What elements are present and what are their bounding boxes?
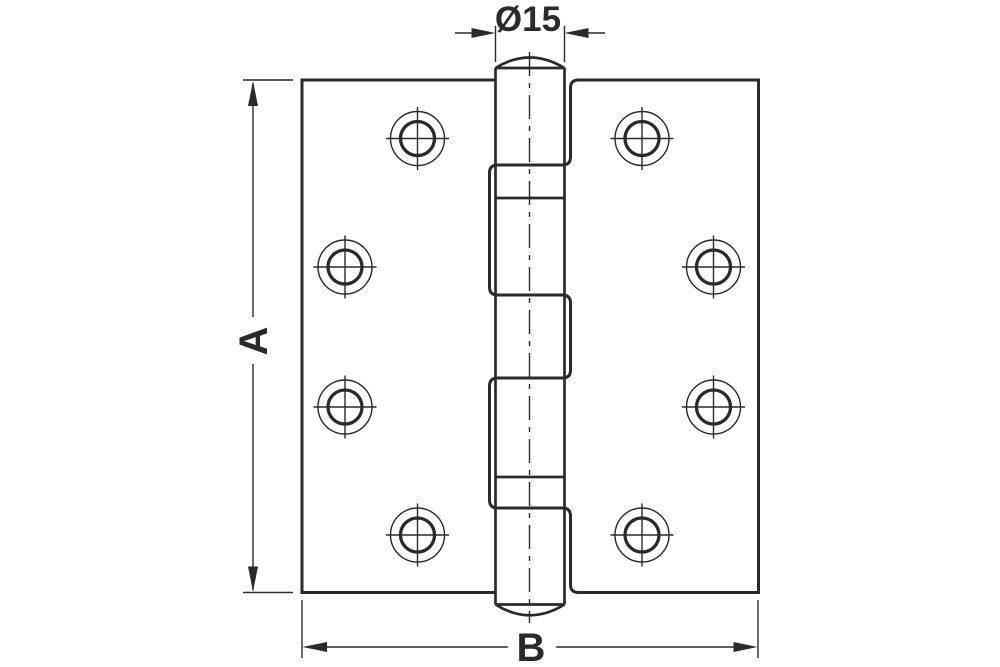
arrowhead-right bbox=[734, 642, 758, 652]
arrowhead-left bbox=[303, 642, 328, 652]
screw-hole bbox=[682, 236, 745, 299]
screw-hole bbox=[386, 504, 449, 567]
drawing-canvas: Ø15 A B bbox=[0, 0, 1000, 667]
hinge-barrel bbox=[496, 52, 565, 623]
width-dimension-label: B bbox=[517, 626, 546, 667]
screw-hole bbox=[314, 236, 377, 299]
height-dimension-label: A bbox=[232, 327, 276, 356]
screw-hole bbox=[386, 107, 449, 170]
screw-hole bbox=[611, 504, 674, 567]
screw-hole bbox=[314, 376, 377, 439]
arrowhead-up bbox=[248, 81, 258, 106]
dimension-lines bbox=[243, 26, 758, 658]
screw-hole bbox=[682, 376, 745, 439]
screw-hole bbox=[611, 107, 674, 170]
arrowhead-down bbox=[248, 567, 258, 592]
arrowhead-left bbox=[565, 28, 589, 38]
arrowhead-right bbox=[472, 28, 496, 38]
hinge-leaves bbox=[302, 80, 759, 593]
pin-diameter-label: Ø15 bbox=[495, 0, 561, 39]
hinge-technical-drawing: Ø15 A B bbox=[0, 0, 1000, 667]
